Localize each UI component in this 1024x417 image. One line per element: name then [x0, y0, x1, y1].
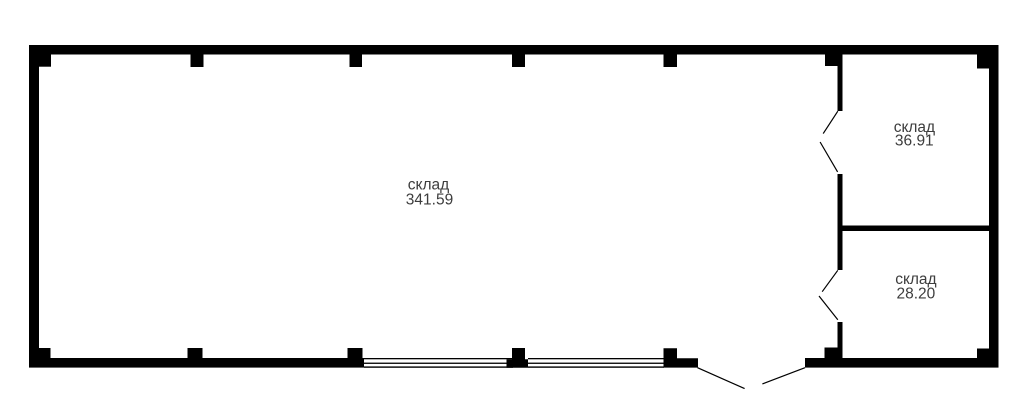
svg-text:28.20: 28.20 [897, 285, 936, 302]
svg-text:341.59: 341.59 [406, 191, 453, 208]
svg-text:36.91: 36.91 [895, 132, 934, 149]
